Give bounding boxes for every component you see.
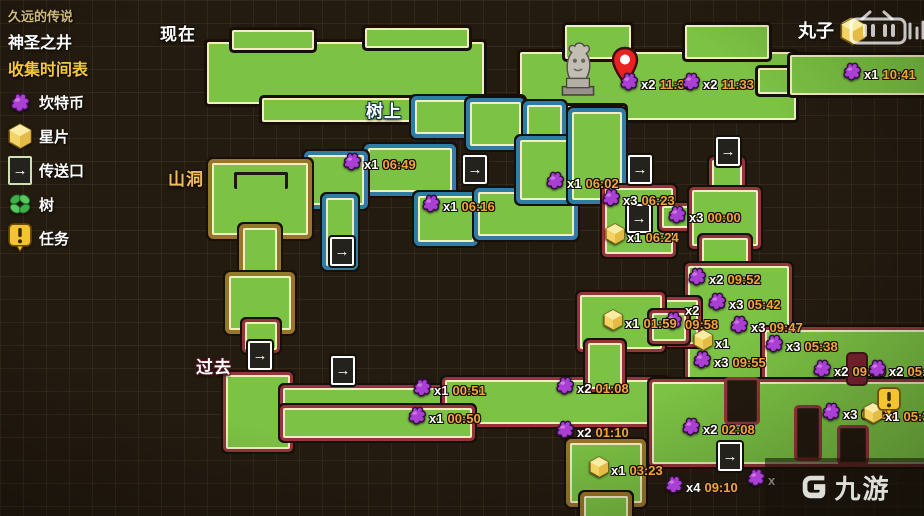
jiuyou-watermark: 九游 bbox=[765, 458, 924, 516]
shard-icon bbox=[588, 456, 610, 478]
coin-marker: x409:10 bbox=[663, 473, 738, 495]
coin-marker: x100:50 bbox=[406, 404, 481, 426]
teleport-icon: → bbox=[718, 442, 742, 471]
coin-icon bbox=[341, 150, 363, 172]
legend-item-label: 星片 bbox=[39, 126, 69, 147]
marker-time: 10:41 bbox=[882, 67, 915, 82]
map-title: 神圣之井 bbox=[8, 29, 88, 53]
marker-count: x2 bbox=[703, 422, 717, 437]
teleport-icon: → bbox=[330, 237, 354, 266]
coin-icon bbox=[691, 348, 713, 370]
series-title: 久远的传说 bbox=[8, 6, 88, 25]
marker-count: x1 bbox=[434, 383, 448, 398]
marker-time: 05:42 bbox=[747, 297, 780, 312]
marker-count: x2 bbox=[834, 364, 848, 379]
marker-count: x1 bbox=[443, 199, 457, 214]
coin-icon bbox=[811, 357, 833, 379]
marker-count: x2 bbox=[577, 425, 591, 440]
teleport-icon: → bbox=[463, 155, 487, 184]
legend-item-quest: 任务 bbox=[8, 226, 88, 250]
legend-item-shard: 星片 bbox=[8, 124, 88, 148]
marker-time: 11:33 bbox=[721, 77, 754, 92]
legend-panel: 久远的传说 神圣之井 收集时间表 坎特币 星片 → 传送口 树 任务 bbox=[8, 6, 88, 250]
teleport-icon: → bbox=[628, 155, 652, 184]
marker-time: 01:59 bbox=[643, 316, 676, 331]
coin-icon bbox=[420, 192, 442, 214]
coin-marker: x205:33 bbox=[866, 357, 924, 379]
coin-marker: x201:08 bbox=[554, 374, 629, 396]
coin-icon bbox=[680, 415, 702, 437]
marker-count: x3 bbox=[623, 193, 637, 208]
teleport-icon: → bbox=[248, 341, 272, 370]
coin-marker: x201:10 bbox=[554, 418, 629, 440]
coin-icon bbox=[554, 418, 576, 440]
marker-count: x1 bbox=[364, 157, 378, 172]
marker-time: 00:00 bbox=[707, 210, 740, 225]
marker-count: x4 bbox=[686, 480, 700, 495]
coin-icon bbox=[8, 89, 32, 115]
coin-icon bbox=[841, 60, 863, 82]
legend-item-tree: 树 bbox=[8, 192, 88, 216]
marker-time: 06:49 bbox=[382, 157, 415, 172]
legend-item-coin: 坎特币 bbox=[8, 90, 88, 114]
shard-marker: x103:23 bbox=[588, 456, 663, 478]
marker-time: 05:38 bbox=[804, 339, 837, 354]
coin-icon bbox=[866, 357, 888, 379]
marker-count: x2 bbox=[889, 364, 903, 379]
coin-marker: x306:23 bbox=[600, 186, 675, 208]
coin-icon bbox=[618, 70, 640, 92]
quest-icon bbox=[877, 387, 901, 416]
marker-time: 02:08 bbox=[721, 422, 754, 437]
shard-icon bbox=[602, 309, 624, 331]
marker-count: x2 bbox=[703, 77, 717, 92]
coin-marker: x209:52 bbox=[686, 265, 761, 287]
author-credit: 丸子 bbox=[798, 17, 834, 43]
coin-marker: x110:41 bbox=[841, 60, 916, 82]
coin-marker: x106:16 bbox=[420, 192, 495, 214]
marker-time: 09:10 bbox=[704, 480, 737, 495]
marker-time: 03:23 bbox=[629, 463, 662, 478]
marker-time: 00:50 bbox=[447, 411, 480, 426]
coin-icon bbox=[663, 473, 685, 495]
coin-icon bbox=[680, 70, 702, 92]
quest-icon bbox=[8, 225, 32, 251]
coin-icon bbox=[763, 332, 785, 354]
coin-icon bbox=[600, 186, 622, 208]
shard-marker: x106:24 bbox=[604, 223, 679, 245]
tree-icon bbox=[8, 191, 32, 217]
marker-count: x3 bbox=[714, 355, 728, 370]
statue-icon bbox=[557, 40, 599, 101]
marker-count: x2 bbox=[577, 381, 591, 396]
teleport-icon: → bbox=[716, 137, 740, 166]
legend-item-label: 传送口 bbox=[39, 160, 84, 181]
game-map-screenshot: →→→→→→→→x211:36x211:33x110:41x106:49x106… bbox=[0, 0, 924, 516]
marker-count: x2 bbox=[685, 304, 699, 318]
coin-marker: x202:08 bbox=[680, 415, 755, 437]
teleport-icon: → bbox=[331, 356, 355, 385]
bilibili-logo bbox=[840, 8, 924, 55]
coin-icon bbox=[411, 376, 433, 398]
marker-count: x1 bbox=[611, 463, 625, 478]
teleport-icon: → bbox=[8, 157, 32, 183]
marker-time: 00:51 bbox=[452, 383, 485, 398]
marker-time: 05:33 bbox=[907, 364, 924, 379]
marker-count: x1 bbox=[625, 316, 639, 331]
coin-icon bbox=[666, 203, 688, 225]
marker-count: x3 bbox=[689, 210, 703, 225]
marker-count: x2 bbox=[709, 272, 723, 287]
coin-marker: x106:49 bbox=[341, 150, 416, 172]
shard-icon bbox=[8, 123, 32, 149]
jiuyou-logo-icon bbox=[798, 471, 830, 503]
legend-item-label: 任务 bbox=[39, 228, 69, 249]
shard-marker: x101:59 bbox=[602, 309, 677, 331]
coin-icon bbox=[745, 466, 767, 488]
zone-label-cave: 山洞 bbox=[168, 165, 204, 190]
legend-item-label: 坎特币 bbox=[39, 92, 84, 113]
coin-marker: x211:33 bbox=[680, 70, 754, 92]
marker-count: x3 bbox=[786, 339, 800, 354]
coin-icon bbox=[820, 400, 842, 422]
site-name: 九游 bbox=[834, 469, 890, 506]
coin-marker: x309:55 bbox=[691, 348, 766, 370]
marker-count: x1 bbox=[715, 336, 729, 351]
coin-icon bbox=[554, 374, 576, 396]
legend-subtitle: 收集时间表 bbox=[8, 56, 88, 80]
marker-time: 01:10 bbox=[595, 425, 628, 440]
marker-time: 06:16 bbox=[461, 199, 494, 214]
marker-time: 05:31 bbox=[903, 409, 924, 424]
marker-count: x3 bbox=[843, 407, 857, 422]
vignette-overlay bbox=[0, 0, 924, 516]
marker-count: x1 bbox=[864, 67, 878, 82]
marker-time: 01:08 bbox=[595, 381, 628, 396]
shard-icon bbox=[604, 223, 626, 245]
coin-icon bbox=[686, 265, 708, 287]
coin-marker: x305:38 bbox=[763, 332, 838, 354]
coin-icon bbox=[406, 404, 428, 426]
marker-time: 06:24 bbox=[645, 230, 678, 245]
coin-icon bbox=[544, 169, 566, 191]
legend-item-teleport: → 传送口 bbox=[8, 158, 88, 182]
legend-item-label: 树 bbox=[39, 194, 54, 215]
marker-count: x1 bbox=[627, 230, 641, 245]
marker-count: x1 bbox=[429, 411, 443, 426]
marker-count: x3 bbox=[729, 297, 743, 312]
marker-time: 09:52 bbox=[727, 272, 760, 287]
zone-label-past: 过去 bbox=[196, 353, 232, 378]
shard-marker: x1 bbox=[692, 329, 733, 351]
shard-icon bbox=[692, 329, 714, 351]
coin-marker: x100:51 bbox=[411, 376, 486, 398]
marker-time: 09:55 bbox=[732, 355, 765, 370]
zone-label-now: 现在 bbox=[160, 20, 196, 45]
zone-label-tree-top: 树上 bbox=[366, 97, 402, 122]
marker-count: x1 bbox=[567, 176, 581, 191]
marker-count: x2 bbox=[641, 77, 655, 92]
coin-marker: x300:00 bbox=[666, 203, 741, 225]
